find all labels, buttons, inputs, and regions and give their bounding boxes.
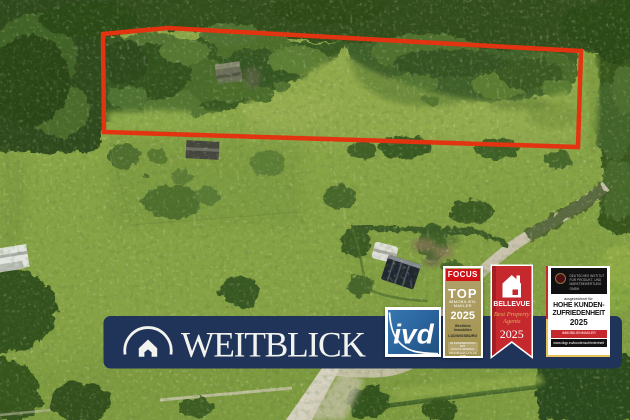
svg-text:ivd: ivd <box>393 318 434 349</box>
svg-text:WEITBLICK: WEITBLICK <box>181 325 366 365</box>
